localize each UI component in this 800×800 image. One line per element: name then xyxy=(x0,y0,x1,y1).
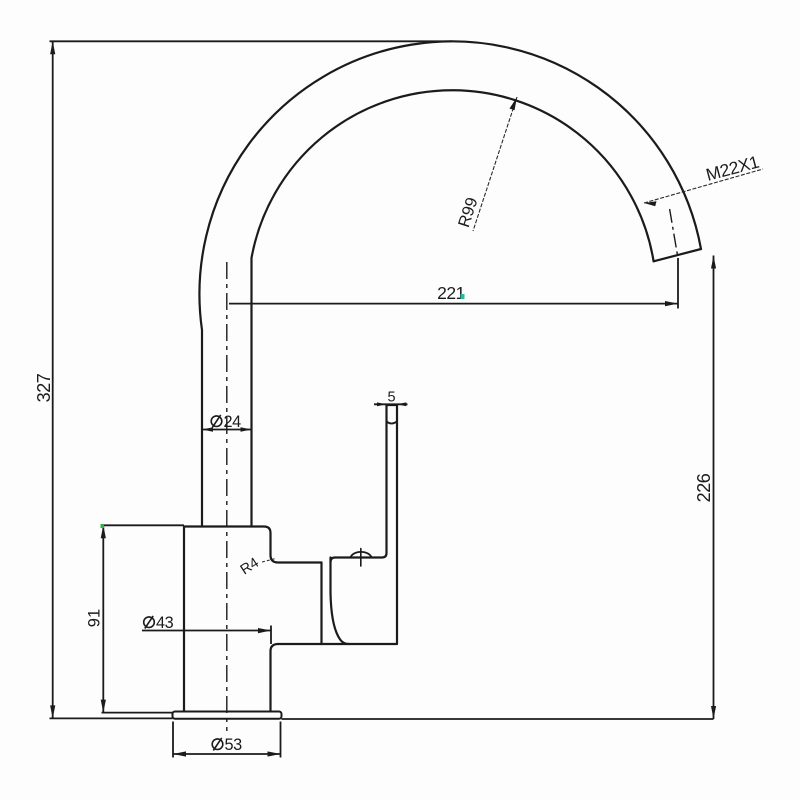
svg-text:R99: R99 xyxy=(455,195,481,229)
svg-text:226: 226 xyxy=(694,473,714,502)
svg-text:53: 53 xyxy=(225,736,243,754)
svg-text:M22X1: M22X1 xyxy=(704,152,761,185)
svg-text:R4: R4 xyxy=(238,555,262,579)
svg-text:91: 91 xyxy=(86,609,104,627)
svg-text:5: 5 xyxy=(387,390,395,406)
svg-text:24: 24 xyxy=(224,413,242,431)
svg-text:221: 221 xyxy=(437,283,465,303)
svg-text:43: 43 xyxy=(156,614,174,632)
svg-text:327: 327 xyxy=(34,373,54,402)
